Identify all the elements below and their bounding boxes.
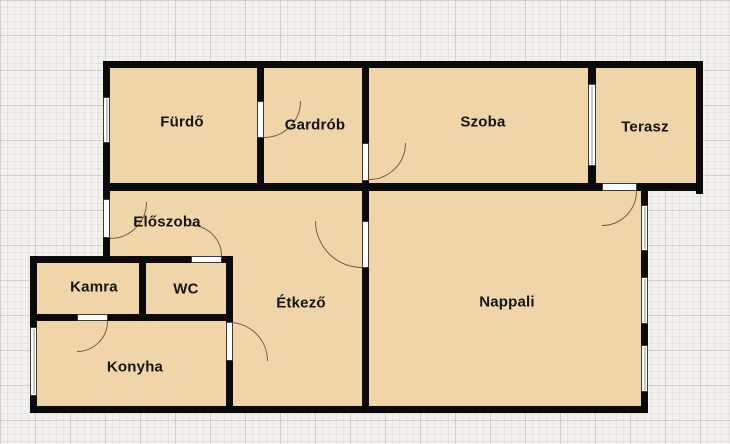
door-swing-arc-kamra <box>77 321 108 352</box>
door-gardrob-szoba <box>362 143 369 181</box>
room-label-konyha: Konyha <box>107 359 163 376</box>
door-entrance <box>103 199 110 238</box>
room-label-furdo: Fürdő <box>160 114 204 131</box>
room-label-terasz: Terasz <box>621 119 669 136</box>
door-etkezo-nappali <box>362 221 369 268</box>
wall-terasz-right <box>696 61 703 194</box>
door-wc <box>191 256 222 263</box>
wall-mid-horizontal-left <box>103 183 602 191</box>
door-swing-arc-terasz-nappali <box>602 191 637 226</box>
window-furdo <box>103 97 110 143</box>
door-swing-arc-etkezo-nappali <box>315 221 362 268</box>
door-terasz-nappali <box>602 183 637 191</box>
wall-outer-top <box>103 61 703 68</box>
window-nappali-1 <box>641 205 648 251</box>
door-furdo-gardrob <box>257 101 264 138</box>
room-label-kamra: Kamra <box>70 279 118 296</box>
wall-kamra-wc <box>139 263 146 314</box>
window-szoba-terasz <box>588 84 596 166</box>
room-label-nappali: Nappali <box>479 294 535 311</box>
room-label-gardrob: Gardrób <box>285 117 346 134</box>
door-kamra-konyha <box>77 314 108 321</box>
window-nappali-3 <box>641 345 648 392</box>
window-nappali-2 <box>641 277 648 324</box>
door-swing-arc-gardrob-szoba <box>369 143 406 180</box>
room-label-etkezo: Étkező <box>276 295 326 312</box>
wall-kamra-konyha <box>30 314 233 321</box>
wall-mid-horizontal-right <box>637 183 703 191</box>
room-label-szoba: Szoba <box>460 114 505 131</box>
room-label-wc: WC <box>173 281 198 298</box>
room-label-eloszoba: Előszoba <box>133 214 200 231</box>
window-konyha <box>30 327 37 396</box>
floor-plan-canvas: Fürdő Gardrób Szoba Terasz Előszoba Kamr… <box>0 0 730 444</box>
wall-outer-bottom <box>30 406 648 413</box>
door-swing-arc-konyha-etkezo <box>229 322 268 361</box>
